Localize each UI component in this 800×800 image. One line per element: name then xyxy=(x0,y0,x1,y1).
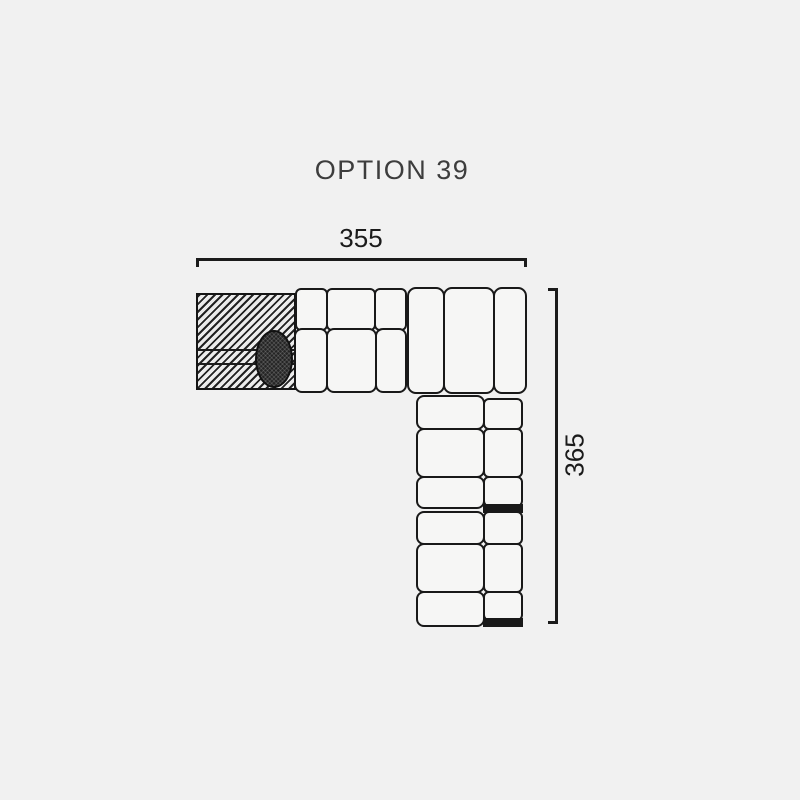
height-dimension-label: 365 xyxy=(560,433,591,476)
seat-cushion xyxy=(416,395,485,430)
seat-cushion xyxy=(416,476,485,509)
seat-cushion xyxy=(416,591,485,627)
back-cushion xyxy=(483,428,523,478)
width-dimension-line xyxy=(196,258,527,261)
seat-cushion xyxy=(294,328,328,393)
module-divider-band xyxy=(483,618,523,627)
seat-cushion xyxy=(416,511,485,545)
oval-bolster-cushion xyxy=(255,330,293,388)
seat-cushion xyxy=(416,543,485,593)
tall-cushion xyxy=(443,287,495,394)
back-cushion xyxy=(483,543,523,593)
width-dimension-tick-left xyxy=(196,258,199,267)
back-cushion xyxy=(295,288,328,331)
width-dimension-label: 355 xyxy=(339,223,382,254)
height-dimension-tick-bottom xyxy=(548,621,557,624)
height-dimension-line xyxy=(555,288,558,624)
seat-cushion xyxy=(375,328,407,393)
seat-cushion xyxy=(416,428,485,478)
tall-cushion xyxy=(407,287,445,394)
tall-cushion xyxy=(493,287,527,394)
back-cushion xyxy=(374,288,407,331)
back-cushion xyxy=(326,288,376,331)
back-cushion xyxy=(483,511,523,545)
width-dimension-tick-right xyxy=(524,258,527,267)
back-cushion xyxy=(483,398,523,430)
page-title: OPTION 39 xyxy=(315,155,470,186)
back-cushion xyxy=(483,476,523,507)
back-cushion xyxy=(483,591,523,621)
seat-cushion xyxy=(326,328,377,393)
height-dimension-tick-top xyxy=(548,288,557,291)
